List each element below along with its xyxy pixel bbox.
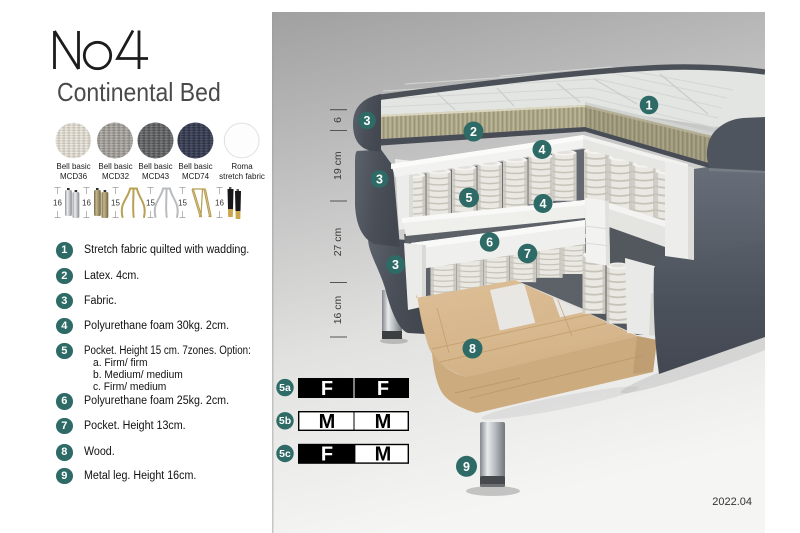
svg-text:7: 7 xyxy=(524,247,531,261)
svg-text:9: 9 xyxy=(463,460,470,474)
svg-text:8: 8 xyxy=(469,342,476,356)
svg-text:19 cm: 19 cm xyxy=(332,151,344,180)
svg-text:15: 15 xyxy=(146,199,155,208)
svg-text:16: 16 xyxy=(215,199,224,208)
svg-text:5b: 5b xyxy=(279,415,291,427)
svg-text:2022.04: 2022.04 xyxy=(712,496,752,508)
svg-text:3: 3 xyxy=(364,114,371,128)
svg-text:F: F xyxy=(377,378,389,400)
svg-text:5a: 5a xyxy=(279,382,291,394)
svg-text:16: 16 xyxy=(53,199,62,208)
svg-text:M: M xyxy=(375,411,392,433)
svg-text:5c: 5c xyxy=(279,448,291,460)
svg-text:2: 2 xyxy=(470,125,477,139)
svg-text:27 cm: 27 cm xyxy=(332,227,344,256)
svg-text:F: F xyxy=(321,443,333,465)
svg-text:3: 3 xyxy=(376,173,383,187)
svg-text:15: 15 xyxy=(178,199,187,208)
svg-text:M: M xyxy=(375,443,392,465)
svg-text:16: 16 xyxy=(82,199,91,208)
svg-text:1: 1 xyxy=(646,99,653,113)
svg-text:15: 15 xyxy=(111,199,120,208)
svg-text:6: 6 xyxy=(332,117,344,123)
svg-text:5: 5 xyxy=(466,191,473,205)
svg-text:F: F xyxy=(321,378,333,400)
svg-text:M: M xyxy=(319,411,336,433)
svg-text:3: 3 xyxy=(392,258,399,272)
svg-text:16 cm: 16 cm xyxy=(332,295,344,324)
svg-text:4: 4 xyxy=(539,143,546,157)
svg-text:4: 4 xyxy=(540,197,547,211)
svg-text:6: 6 xyxy=(486,236,493,250)
